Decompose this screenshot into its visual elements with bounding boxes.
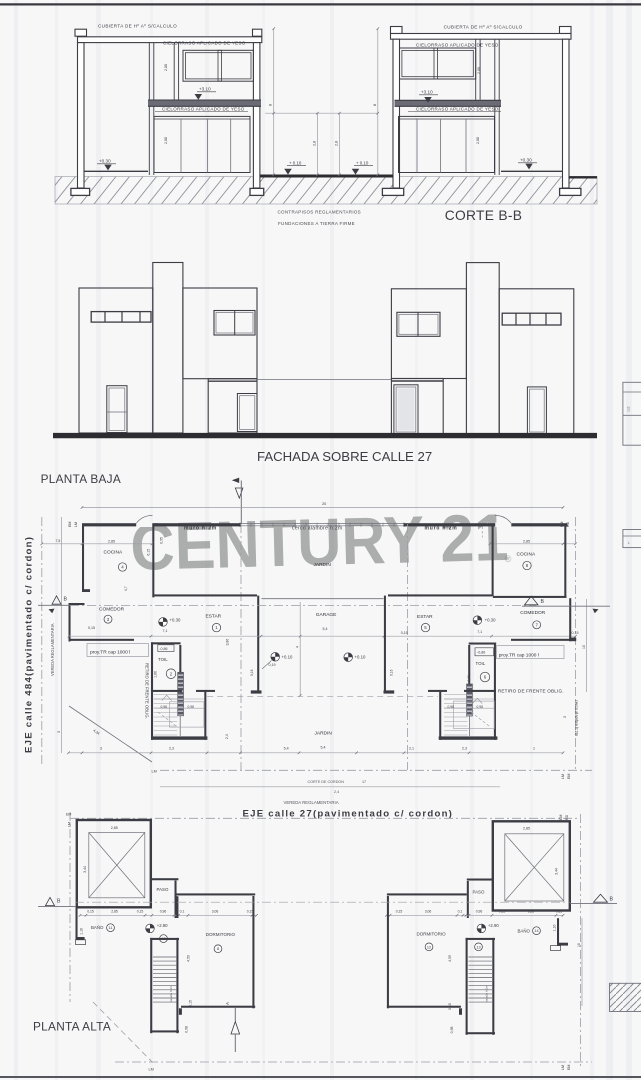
svg-text:2,88: 2,88 [164, 64, 168, 71]
svg-text:EM: EM [66, 813, 71, 817]
svg-text:0,16: 0,16 [250, 669, 254, 676]
svg-text:RETIRO DE FRENTE OBLIG.: RETIRO DE FRENTE OBLIG. [145, 663, 150, 719]
svg-text:0,15: 0,15 [572, 631, 579, 635]
svg-text:0,98: 0,98 [448, 705, 455, 709]
svg-text:2,4: 2,4 [225, 734, 229, 739]
svg-text:VEREDA REGLAMENTARIA: VEREDA REGLAMENTARIA [284, 800, 339, 805]
svg-text:A: A [225, 1002, 230, 1005]
svg-text:12: 12 [427, 945, 431, 949]
svg-text:B: B [64, 597, 68, 603]
svg-text:LM: LM [561, 774, 565, 779]
svg-text:+ 0.10: + 0.10 [289, 160, 302, 165]
svg-text:2,3: 2,3 [169, 746, 174, 750]
svg-text:4,59: 4,59 [187, 955, 191, 962]
svg-text:DORMITORIO: DORMITORIO [206, 932, 236, 937]
svg-text:+0.10: +0.10 [355, 655, 366, 660]
svg-text:EM: EM [68, 522, 72, 527]
svg-text:PASO: PASO [157, 887, 169, 892]
svg-text:3,44: 3,44 [554, 868, 558, 875]
svg-text:2,88: 2,88 [477, 67, 481, 74]
svg-text:LM: LM [561, 1065, 565, 1070]
svg-text:4,59: 4,59 [448, 955, 452, 962]
svg-text:CORTE B-B: CORTE B-B [445, 208, 523, 223]
svg-text:0,15: 0,15 [396, 910, 403, 914]
svg-text:CONTRAPISOS REGLAMENTARIOS: CONTRAPISOS REGLAMENTARIOS [278, 210, 361, 215]
svg-text:2,8: 2,8 [313, 141, 317, 146]
svg-text:B: B [610, 896, 614, 902]
svg-text:4: 4 [121, 565, 124, 570]
svg-text:1,16: 1,16 [552, 924, 556, 931]
svg-text:CUBIERTA DE Hº Aº S/CALCULO: CUBIERTA DE Hº Aº S/CALCULO [98, 24, 177, 29]
svg-text:7,1: 7,1 [163, 629, 168, 633]
svg-text:3,86: 3,86 [225, 639, 229, 646]
svg-text:0,15: 0,15 [137, 910, 144, 914]
svg-text:CIELORRASO APLICADO DE YESO: CIELORRASO APLICADO DE YESO [163, 41, 246, 46]
svg-text:8: 8 [217, 947, 219, 951]
svg-text:1s2: 1s2 [627, 406, 631, 412]
svg-text:+ 0.10: + 0.10 [356, 160, 369, 165]
svg-text:10: 10 [161, 937, 165, 941]
svg-text:+3.10: +3.10 [199, 87, 211, 92]
svg-text:FUNDACIONES A TIERRA FIRME: FUNDACIONES A TIERRA FIRME [278, 221, 355, 226]
svg-text:+2.90: +2.90 [157, 923, 168, 928]
svg-text:5,4: 5,4 [284, 746, 289, 750]
svg-text:4: 4 [295, 646, 299, 648]
svg-text:2,3: 2,3 [462, 746, 467, 750]
svg-text:2,85: 2,85 [523, 826, 530, 830]
svg-text:+0.30: +0.30 [485, 617, 496, 622]
svg-text:DORMITORIO: DORMITORIO [417, 931, 447, 936]
svg-text:TOIL: TOIL [158, 657, 168, 662]
svg-text:PLANTA BAJA: PLANTA BAJA [41, 472, 121, 486]
svg-text:BAÑO: BAÑO [518, 929, 531, 934]
svg-text:3,44: 3,44 [83, 866, 87, 873]
svg-text:2,85: 2,85 [111, 826, 118, 830]
svg-text:2: 2 [170, 671, 173, 676]
svg-text:-0,86: -0,86 [477, 651, 485, 655]
svg-text:0,15: 0,15 [499, 910, 506, 914]
svg-text:ESTAR: ESTAR [206, 613, 222, 619]
svg-text:0,16: 0,16 [389, 669, 393, 676]
svg-text:+2.90: +2.90 [488, 923, 499, 928]
svg-text:®: ® [505, 554, 512, 564]
svg-text:CUBIERTA DE Hº Aº S/CALCULO: CUBIERTA DE Hº Aº S/CALCULO [444, 25, 523, 30]
svg-text:14: 14 [534, 929, 538, 933]
svg-text:ESTAR: ESTAR [417, 614, 433, 620]
svg-text:GARAGE: GARAGE [316, 612, 337, 618]
svg-text:LM: LM [68, 822, 72, 827]
svg-text:1: 1 [215, 625, 218, 630]
svg-text:11: 11 [109, 926, 113, 930]
svg-text:0,96: 0,96 [476, 910, 483, 914]
svg-text:COMEDOR: COMEDOR [520, 610, 546, 616]
svg-text:CIELORRASO APLICADO DE YESO: CIELORRASO APLICADO DE YESO [416, 43, 499, 48]
svg-text:3: 3 [100, 746, 102, 750]
svg-text:COCINA: COCINA [517, 552, 536, 558]
svg-text:0,15: 0,15 [556, 910, 563, 914]
svg-text:3: 3 [107, 617, 110, 622]
svg-text:0,96: 0,96 [160, 910, 167, 914]
svg-text:2,88: 2,88 [476, 137, 480, 144]
svg-text:3: 3 [57, 731, 61, 733]
svg-text:3,06: 3,06 [212, 910, 219, 914]
svg-text:COMEDOR: COMEDOR [99, 606, 125, 612]
svg-text:5,4: 5,4 [323, 627, 328, 631]
svg-text:10: 10 [582, 645, 586, 649]
svg-text:8: 8 [269, 104, 273, 106]
svg-text:2,4: 2,4 [334, 790, 339, 794]
svg-text:2,85: 2,85 [528, 910, 535, 914]
svg-text:EJE calle 27(pavimentado c/ co: EJE calle 27(pavimentado c/ cordon) [243, 808, 454, 819]
svg-text:5: 5 [424, 625, 427, 630]
svg-text:CORTE DE CORDON: CORTE DE CORDON [308, 780, 345, 784]
svg-text:EM: EM [567, 774, 571, 779]
svg-text:2,85: 2,85 [108, 539, 115, 543]
svg-text:17: 17 [362, 780, 366, 784]
svg-text:L: L [628, 541, 630, 545]
svg-text:LM: LM [149, 1068, 154, 1072]
svg-text:proy.TR cap 1000 l: proy.TR cap 1000 l [90, 650, 130, 656]
svg-text:CIELORRASO APLICADO DE YESO: CIELORRASO APLICADO DE YESO [162, 106, 245, 111]
svg-text:muro h:2m: muro h:2m [425, 525, 458, 531]
svg-text:JARDIN: JARDIN [314, 562, 332, 568]
svg-text:EM: EM [567, 1065, 571, 1070]
svg-text:13: 13 [476, 945, 480, 949]
svg-text:bajada h:1m: bajada h:1m [485, 985, 489, 1002]
svg-text:EM: EM [559, 815, 563, 820]
svg-text:muro h:2m: muro h:2m [184, 525, 217, 531]
svg-text:20: 20 [322, 502, 326, 506]
svg-text:FACHADA SOBRE CALLE 27: FACHADA SOBRE CALLE 27 [257, 449, 432, 464]
svg-text:+0.30: +0.30 [520, 158, 532, 163]
svg-text:0,15: 0,15 [88, 626, 95, 630]
svg-text:7: 7 [535, 622, 538, 627]
svg-text:cerco alambre h:2m: cerco alambre h:2m [574, 700, 579, 737]
svg-text:PLANTA ALTA: PLANTA ALTA [33, 1019, 111, 1033]
svg-text:COCINA: COCINA [104, 549, 123, 555]
svg-text:LM: LM [152, 769, 157, 773]
svg-text:10: 10 [577, 943, 581, 947]
svg-text:1,16: 1,16 [80, 928, 84, 935]
svg-text:0,15: 0,15 [188, 1000, 192, 1007]
svg-text:0,1: 0,1 [180, 910, 185, 914]
svg-text:RETIRO DE FRENTE OBLIG.: RETIRO DE FRENTE OBLIG. [498, 689, 564, 694]
svg-text:0,1: 0,1 [458, 910, 463, 914]
svg-text:1,86: 1,86 [467, 675, 471, 682]
svg-text:LM: LM [74, 522, 78, 527]
svg-text:EJE calle 484(pavimentado c/ c: EJE calle 484(pavimentado c/ cordon) [24, 536, 35, 753]
svg-text:0,95: 0,95 [159, 537, 163, 544]
svg-text:TOIL: TOIL [476, 661, 486, 666]
svg-text:2,88: 2,88 [164, 137, 168, 144]
svg-text:+3.10: +3.10 [421, 90, 433, 95]
svg-text:2,1: 2,1 [409, 746, 414, 750]
svg-text:2,85: 2,85 [523, 539, 530, 543]
svg-text:+0.30: +0.30 [170, 617, 181, 622]
svg-text:proy.TR cap 1000 l: proy.TR cap 1000 l [499, 653, 539, 659]
svg-text:+0.10: +0.10 [282, 654, 293, 659]
svg-text:1,86: 1,86 [154, 671, 158, 678]
svg-text:-0,86: -0,86 [159, 647, 167, 651]
svg-text:7,1: 7,1 [477, 630, 482, 634]
svg-text:0,98: 0,98 [188, 705, 195, 709]
svg-text:6: 6 [484, 675, 487, 680]
svg-text:4,7: 4,7 [124, 586, 128, 591]
svg-text:B: B [541, 599, 545, 605]
svg-text:BAÑO: BAÑO [91, 925, 104, 930]
svg-text:0,98: 0,98 [450, 1026, 454, 1033]
svg-text:0,98: 0,98 [161, 705, 168, 709]
svg-text:0,15: 0,15 [87, 910, 94, 914]
svg-text:6,15: 6,15 [146, 549, 150, 556]
svg-text:0,15: 0,15 [448, 1003, 452, 1010]
svg-text:3: 3 [563, 716, 567, 718]
svg-text:2,8: 2,8 [335, 141, 339, 146]
svg-text:3,06: 3,06 [425, 910, 432, 914]
svg-text:RD: RD [565, 814, 569, 820]
svg-text:CENTURY 21: CENTURY 21 [129, 501, 509, 585]
svg-text:JARDIN: JARDIN [315, 730, 333, 736]
svg-text:0,98: 0,98 [184, 1026, 188, 1033]
svg-text:cerco alambre h:2m: cerco alambre h:2m [292, 525, 343, 531]
svg-text:8: 8 [373, 104, 377, 106]
svg-text:1: 1 [533, 746, 535, 750]
svg-text:2,85: 2,85 [111, 910, 118, 914]
svg-text:VEREDA REGLAMENTARIA: VEREDA REGLAMENTARIA [50, 623, 55, 676]
svg-text:8: 8 [526, 563, 529, 568]
svg-text:0,15: 0,15 [401, 631, 408, 635]
svg-text:7,5: 7,5 [56, 539, 61, 543]
svg-text:bajada h:1m: bajada h:1m [169, 985, 173, 1002]
svg-text:+0.30: +0.30 [99, 159, 111, 164]
svg-text:0,19: 0,19 [269, 663, 276, 667]
svg-text:PASO: PASO [473, 890, 485, 895]
svg-text:CIELORRASO APLICADO DE YESO: CIELORRASO APLICADO DE YESO [416, 106, 499, 111]
svg-text:5,4: 5,4 [321, 746, 326, 750]
svg-text:0,98: 0,98 [477, 705, 484, 709]
svg-text:B: B [57, 898, 61, 904]
